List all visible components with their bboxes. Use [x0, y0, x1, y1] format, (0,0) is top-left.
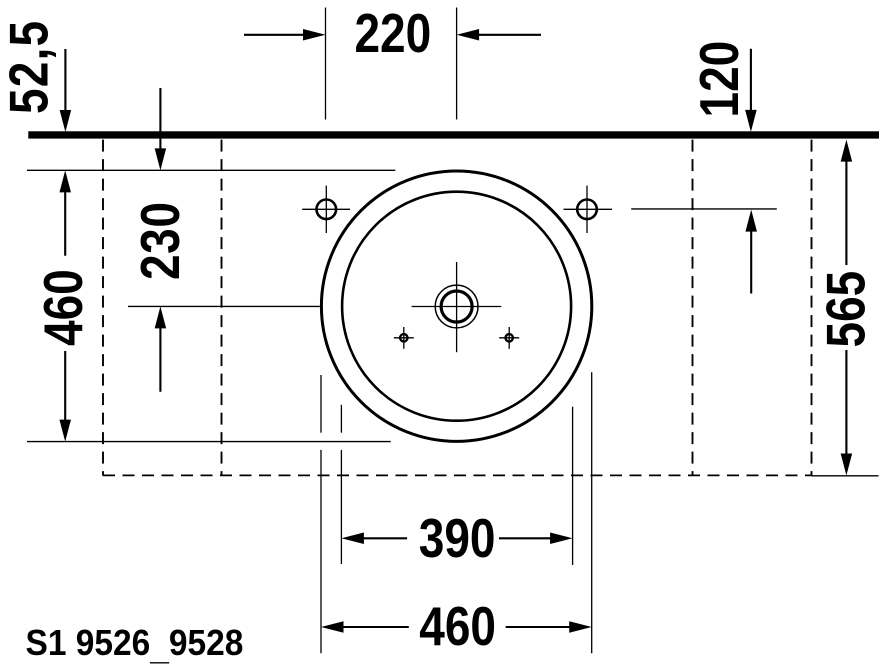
svg-text:120: 120: [688, 41, 749, 118]
svg-text:460: 460: [33, 269, 94, 346]
svg-text:52,5: 52,5: [0, 20, 59, 114]
svg-text:460: 460: [419, 595, 496, 656]
svg-text:565: 565: [815, 271, 876, 348]
svg-text:390: 390: [419, 507, 496, 568]
svg-text:220: 220: [354, 2, 431, 63]
svg-text:230: 230: [129, 201, 190, 280]
svg-text:S1 9526_9528: S1 9526_9528: [26, 623, 244, 667]
